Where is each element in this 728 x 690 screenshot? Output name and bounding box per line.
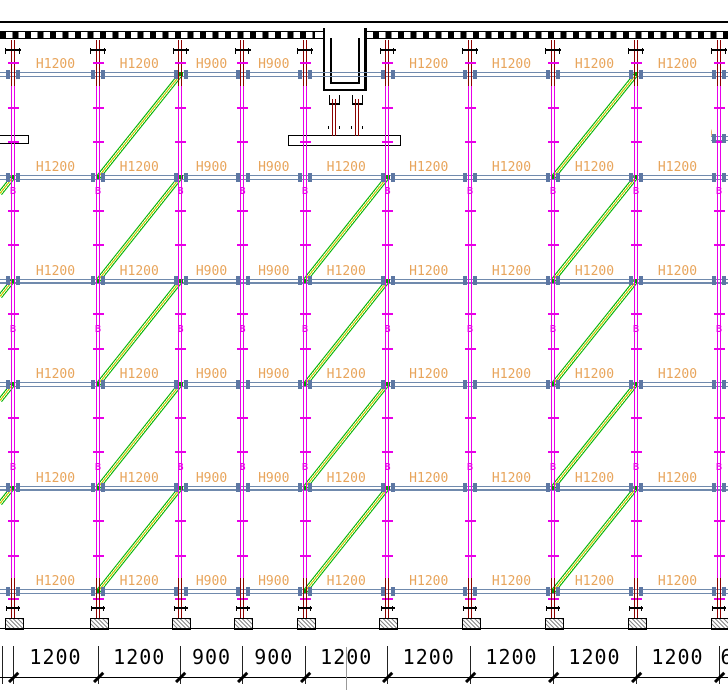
dimension-label: 900 — [234, 647, 314, 668]
coupler-tick — [300, 244, 311, 246]
bay-height-label: H1200 — [13, 58, 98, 72]
coupler-tick — [175, 417, 186, 419]
coupler-tick — [465, 107, 476, 109]
ledger-line — [0, 282, 728, 283]
bay-height-label: H900 — [243, 161, 306, 175]
bay-height-label: H900 — [181, 368, 243, 382]
coupler-tick — [300, 451, 311, 453]
top-plate-bar — [235, 49, 251, 51]
bay-height-label: H1200 — [98, 575, 181, 589]
bay-height-label: H1200 — [636, 472, 719, 486]
coupler-tick — [175, 210, 186, 212]
ledger-line — [0, 489, 728, 490]
coupler-tick — [465, 417, 476, 419]
coupler-tick — [237, 244, 248, 246]
coupler-tick — [300, 210, 311, 212]
bay-height-label: H1200 — [553, 472, 636, 486]
bay-height-label: H1200 — [13, 161, 98, 175]
top-plate-bar — [5, 49, 21, 51]
coupler-tick — [382, 555, 393, 557]
splice-mark: B — [176, 324, 185, 336]
bay-height-label: H900 — [181, 161, 243, 175]
top-plate-bar — [711, 49, 727, 51]
beam-prop-jack — [332, 99, 336, 136]
base-collar-bar — [91, 607, 105, 609]
bay-height-label: H1200 — [636, 265, 719, 279]
coupler-tick — [382, 520, 393, 522]
bay-height-label: H1200 — [470, 472, 553, 486]
grid-line — [346, 647, 347, 690]
coupler-tick — [8, 210, 19, 212]
ledger-line — [0, 593, 728, 594]
bay-height-label: H1200 — [553, 575, 636, 589]
coupler-tick — [631, 520, 642, 522]
base-collar-bar — [236, 607, 250, 609]
coupler-tick — [237, 451, 248, 453]
coupler-tick — [714, 555, 725, 557]
coupler-tick — [548, 107, 559, 109]
coupler-tick — [382, 107, 393, 109]
coupler-tick — [93, 520, 104, 522]
coupler-tick — [382, 141, 393, 143]
coupler-tick — [465, 244, 476, 246]
coupler-tick — [631, 244, 642, 246]
coupler-tick — [382, 348, 393, 350]
bay-height-label: H1200 — [13, 472, 98, 486]
bay-height-label: H1200 — [553, 368, 636, 382]
coupler-tick — [175, 141, 186, 143]
coupler-tick — [237, 107, 248, 109]
splice-mark: B — [9, 324, 18, 336]
coupler-tick — [175, 107, 186, 109]
coupler-tick — [237, 141, 248, 143]
bay-height-label: H1200 — [636, 368, 719, 382]
bay-height-label: H900 — [181, 58, 243, 72]
coupler-tick — [548, 451, 559, 453]
top-plate-bar — [462, 49, 478, 51]
bay-height-label: H1200 — [636, 575, 719, 589]
cad-scaffold-elevation-drawing: BBBBBBBBBBBBBBBBBBBBBBBBBBBBBB0H1200H120… — [0, 0, 728, 690]
slab-top-line — [0, 21, 728, 23]
slab-band-border-bottom — [0, 38, 323, 39]
coupler-tick — [714, 107, 725, 109]
coupler-tick — [237, 348, 248, 350]
coupler-tick — [8, 244, 19, 246]
coupler-tick — [465, 210, 476, 212]
ledger-line — [0, 179, 728, 180]
drop-beam-outline — [358, 38, 360, 84]
coupler-tick — [8, 313, 19, 315]
coupler-tick — [93, 313, 104, 315]
drop-beam-outline — [330, 38, 332, 84]
coupler-tick — [714, 417, 725, 419]
coupler-tick — [465, 141, 476, 143]
ledger-line — [0, 486, 728, 487]
coupler-tick — [93, 451, 104, 453]
top-plate-bar — [173, 49, 189, 51]
splice-mark: B — [466, 324, 475, 336]
bay-height-label: H1200 — [98, 265, 181, 279]
extension-line — [2, 646, 3, 684]
ledger-line — [0, 72, 728, 73]
coupler-tick — [548, 417, 559, 419]
bay-height-label: H1200 — [553, 161, 636, 175]
slab-hatch-band — [373, 32, 728, 38]
bay-height-label: H1200 — [305, 265, 388, 279]
ledger-line — [0, 382, 728, 383]
bay-height-label: H900 — [243, 575, 306, 589]
bay-height-label: H1200 — [636, 161, 719, 175]
bay-height-label: H1200 — [470, 161, 553, 175]
coupler-tick — [548, 313, 559, 315]
coupler-tick — [300, 141, 311, 143]
bay-height-label: H1200 — [388, 368, 471, 382]
coupler-tick — [93, 348, 104, 350]
dimension-label: 1200 — [638, 647, 718, 668]
coupler-tick — [631, 348, 642, 350]
slab-hatch-band — [0, 32, 315, 38]
bay-height-label: H900 — [243, 265, 306, 279]
coupler-tick — [465, 555, 476, 557]
coupler-tick — [631, 313, 642, 315]
splice-mark: B — [9, 186, 18, 198]
coupler-tick — [175, 348, 186, 350]
splice-mark: B — [238, 324, 247, 336]
coupler-tick — [631, 417, 642, 419]
coupler-tick — [548, 520, 559, 522]
bay-height-label: H1200 — [470, 265, 553, 279]
coupler-tick — [714, 313, 725, 315]
top-plate-bar — [628, 49, 644, 51]
coupler-tick — [548, 141, 559, 143]
coupler-tick — [631, 141, 642, 143]
dimension-label: 1200 — [555, 647, 635, 668]
coupler-tick — [714, 451, 725, 453]
bay-height-label: H1200 — [98, 58, 181, 72]
bay-height-label: H1200 — [305, 161, 388, 175]
bay-height-label: H1200 — [305, 575, 388, 589]
base-collar-bar — [298, 607, 312, 609]
bay-height-label: H1200 — [13, 368, 98, 382]
splice-mark: B — [715, 186, 724, 198]
dimension-label: 1200 — [16, 647, 96, 668]
splice-mark: B — [715, 324, 724, 336]
bay-height-label: H1200 — [98, 472, 181, 486]
bay-height-label: H1200 — [388, 58, 471, 72]
coupler-tick — [548, 244, 559, 246]
coupler-tick — [465, 313, 476, 315]
coupler-tick — [300, 348, 311, 350]
coupler-tick — [175, 313, 186, 315]
base-collar-bar — [546, 607, 560, 609]
bay-height-label: H900 — [181, 472, 243, 486]
coupler-tick — [237, 417, 248, 419]
bay-height-label: H1200 — [305, 472, 388, 486]
ledger-line — [0, 175, 728, 176]
coupler-tick — [175, 520, 186, 522]
bay-height-label: H900 — [181, 575, 243, 589]
splice-mark: B — [94, 186, 103, 198]
base-collar-bar — [629, 607, 643, 609]
coupler-tick — [93, 417, 104, 419]
coupler-tick — [237, 520, 248, 522]
splice-mark: B — [632, 324, 641, 336]
bay-height-label: H1200 — [553, 265, 636, 279]
coupler-tick — [237, 313, 248, 315]
coupler-tick — [8, 520, 19, 522]
ledger-line — [0, 589, 728, 590]
bay-height-label: H1200 — [13, 575, 98, 589]
bay-height-label: H1200 — [636, 58, 719, 72]
coupler-tick — [300, 107, 311, 109]
top-plate-bar — [90, 49, 106, 51]
coupler-tick — [714, 348, 725, 350]
coupler-tick — [382, 244, 393, 246]
splice-mark: B — [466, 186, 475, 198]
coupler-tick — [714, 210, 725, 212]
coupler-tick — [631, 555, 642, 557]
coupler-tick — [93, 555, 104, 557]
slab-band-border-bottom — [364, 38, 728, 39]
bay-height-label: H1200 — [388, 575, 471, 589]
bay-height-label: H1200 — [13, 265, 98, 279]
bay-height-label: H1200 — [98, 368, 181, 382]
coupler-tick — [93, 244, 104, 246]
bay-height-label: H1200 — [470, 368, 553, 382]
bay-height-label: H1200 — [98, 161, 181, 175]
splice-mark: B — [238, 186, 247, 198]
base-collar-bar — [6, 607, 20, 609]
top-plate-bar — [297, 49, 313, 51]
ledger-line — [0, 386, 728, 387]
bay-height-label: H1200 — [388, 472, 471, 486]
splice-mark: B — [301, 186, 310, 198]
drop-beam-outline — [330, 82, 360, 84]
dimension-label: 1200 — [472, 647, 552, 668]
coupler-tick — [300, 417, 311, 419]
coupler-tick — [8, 451, 19, 453]
top-plate-bar — [380, 49, 396, 51]
coupler-tick — [8, 417, 19, 419]
edge-label-fragment-text: 0 — [711, 128, 713, 142]
bay-height-label: H1200 — [470, 58, 553, 72]
drop-beam-outline — [323, 89, 367, 92]
coupler-tick — [548, 555, 559, 557]
coupler-tick — [8, 107, 19, 109]
coupler-tick — [465, 451, 476, 453]
bay-height-label: H900 — [243, 368, 306, 382]
coupler-tick — [93, 210, 104, 212]
edge-label-fragment: 0 — [711, 128, 719, 142]
splice-mark: B — [301, 324, 310, 336]
coupler-tick — [382, 210, 393, 212]
coupler-tick — [465, 348, 476, 350]
splice-mark: B — [549, 186, 558, 198]
coupler-tick — [382, 451, 393, 453]
coupler-tick — [548, 210, 559, 212]
bay-height-label: H1200 — [305, 368, 388, 382]
splice-mark: B — [383, 324, 392, 336]
coupler-tick — [714, 520, 725, 522]
prop-collar — [351, 126, 363, 129]
ledger-line — [0, 279, 728, 280]
bay-height-label: H1200 — [388, 161, 471, 175]
coupler-tick — [8, 348, 19, 350]
splice-mark: B — [549, 324, 558, 336]
base-collar-bar — [381, 607, 395, 609]
coupler-tick — [237, 555, 248, 557]
splice-mark: B — [632, 186, 641, 198]
ground-line — [0, 628, 728, 629]
coupler-tick — [631, 210, 642, 212]
bay-height-label: H1200 — [388, 265, 471, 279]
dimension-label: 1200 — [389, 647, 469, 668]
bay-height-label: H900 — [243, 472, 306, 486]
coupler-tick — [175, 451, 186, 453]
drop-beam-outline — [323, 28, 326, 91]
beam-prop-jack — [355, 99, 359, 136]
coupler-tick — [175, 244, 186, 246]
coupler-tick — [8, 555, 19, 557]
coupler-tick — [300, 313, 311, 315]
coupler-tick — [93, 107, 104, 109]
coupler-tick — [382, 313, 393, 315]
coupler-tick — [8, 141, 19, 143]
base-collar-bar — [712, 607, 726, 609]
dimension-label: 600 — [721, 647, 728, 668]
bay-height-label: H900 — [181, 265, 243, 279]
dimension-label: 1200 — [99, 647, 179, 668]
coupler-tick — [93, 141, 104, 143]
splice-mark: B — [383, 186, 392, 198]
top-plate-bar — [545, 49, 561, 51]
base-collar-bar — [463, 607, 477, 609]
coupler-tick — [631, 107, 642, 109]
coupler-tick — [465, 520, 476, 522]
base-collar-bar — [174, 607, 188, 609]
coupler-tick — [548, 348, 559, 350]
ledger-line — [0, 76, 728, 77]
coupler-tick — [175, 555, 186, 557]
bay-height-label: H1200 — [470, 575, 553, 589]
bay-height-label: H1200 — [553, 58, 636, 72]
drop-beam-outline — [364, 28, 367, 91]
coupler-tick — [714, 244, 725, 246]
dimension-line — [0, 677, 728, 678]
bay-height-label: H900 — [243, 58, 306, 72]
prop-collar — [328, 126, 340, 129]
coupler-tick — [382, 417, 393, 419]
splice-mark: B — [176, 186, 185, 198]
coupler-tick — [237, 210, 248, 212]
splice-mark: B — [94, 324, 103, 336]
coupler-tick — [300, 555, 311, 557]
coupler-tick — [300, 520, 311, 522]
coupler-tick — [631, 451, 642, 453]
